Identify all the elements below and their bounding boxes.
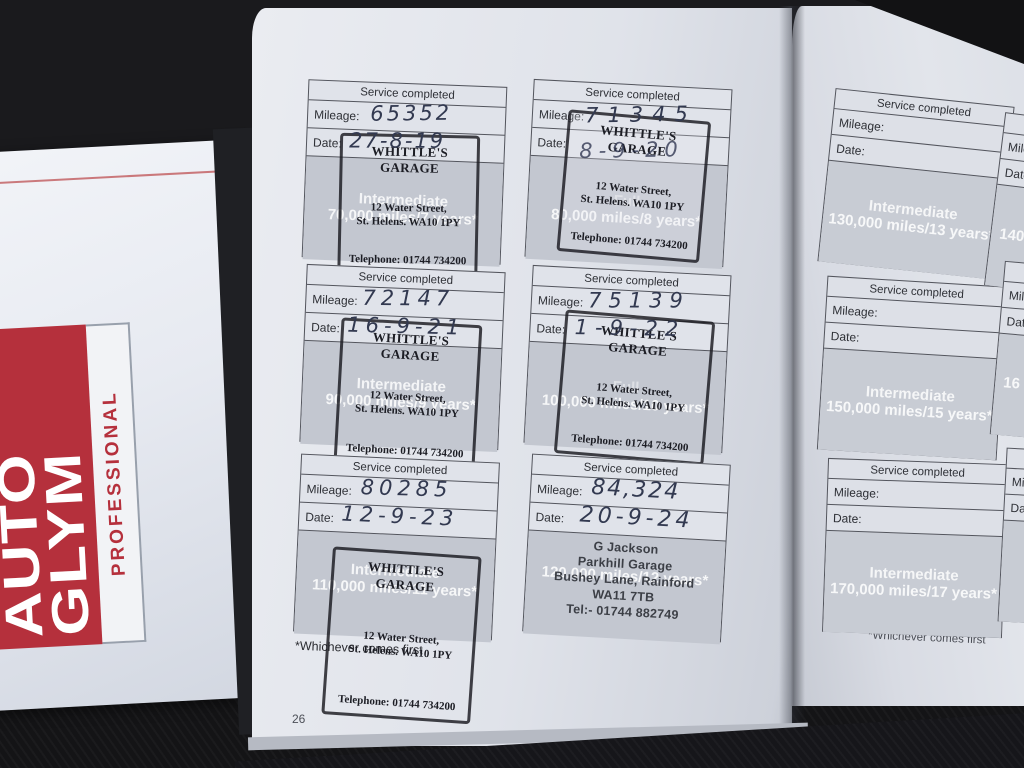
mileage-value: 75139 — [588, 289, 690, 313]
mileage-label: Mileage: — [532, 292, 584, 309]
service-record-box-blank-2: Service completed Mileage: Date: Interme… — [817, 276, 1007, 461]
service-book-photo: AUTO GLYM TM PROFESSIONAL visit us at Se… — [0, 0, 1024, 768]
trademark-symbol: TM — [0, 355, 1, 370]
autoglym-logo-red-block: AUTO GLYM TM — [0, 325, 102, 650]
stamp-address-line2: St. Helens. WA10 1PY — [344, 214, 472, 231]
date-label: Date: — [1000, 313, 1024, 330]
book-spine-shadow — [779, 6, 805, 742]
whittles-garage-stamp: WHITTLE'S GARAGE 12 Water Street, St. He… — [333, 317, 482, 471]
date-label: Date: — [827, 510, 862, 525]
stamp-address: 12 Water Street, St. Helens. WA10 1PY — [331, 626, 470, 664]
date-label: Date: — [307, 135, 342, 150]
date-value: 20-9-24 — [579, 502, 694, 533]
service-record-box-blank-3: Service completed Mileage: Date: Interme… — [822, 458, 1008, 638]
date-label: Date: — [305, 319, 340, 334]
mileage-label: Mileage: — [1006, 474, 1024, 491]
mileage-label: Mileage: — [306, 291, 358, 307]
whittles-garage-stamp: WHITTLE'S GARAGE 12 Water Street, St. He… — [337, 133, 480, 278]
date-label: Date: — [824, 328, 859, 344]
leaflet-red-line — [0, 169, 251, 186]
service-record-box-1: Service completed Mileage: 65352 Date: 2… — [302, 79, 508, 265]
service-completed-label: Service completed — [353, 460, 448, 476]
mileage-label: Mileage: — [308, 107, 360, 123]
page-number: 26 — [292, 712, 305, 726]
service-completed-label: Service completed — [870, 464, 965, 479]
date-value: 1-9-22 — [574, 315, 685, 341]
mileage-label: Mileage: — [826, 302, 878, 319]
stamp-address: 12 Water Street, St. Helens. WA10 1PY — [564, 377, 704, 417]
service-record-box-blank-1: Service completed Mileage: Date: Interme… — [817, 88, 1014, 280]
stamp-garage-name: WHITTLE'S GARAGE — [336, 557, 475, 598]
stamp-area — [999, 521, 1024, 631]
jackson-garage-stamp: G Jackson Parkhill Garage Bushey Lane, R… — [530, 535, 718, 625]
date-label: Date: — [529, 509, 564, 525]
date-label: Date: — [830, 140, 866, 158]
stamp-area — [818, 161, 1006, 280]
mileage-label: Mileage: — [1002, 287, 1024, 305]
stamp-address: 12 Water Street, St. Helens. WA10 1PY — [344, 200, 473, 231]
date-label: Date: — [299, 509, 334, 525]
service-record-box-5: Service completed Mileage: 80285 Date: 1… — [293, 454, 500, 641]
stamp-phone: Telephone: 01744 734200 — [328, 692, 466, 714]
date-label: Date: — [530, 320, 565, 336]
mileage-value: 71345 — [585, 102, 697, 128]
mileage-value: 84,324 — [591, 475, 681, 505]
autoglym-logo: AUTO GLYM TM PROFESSIONAL — [0, 322, 148, 649]
date-label: Date: — [998, 164, 1024, 182]
stamp-address: 12 Water Street, St. Helens. WA10 1PY — [566, 176, 699, 216]
service-record-box-2: Service completed Mileage: 71345 Date: 8… — [524, 79, 732, 267]
whittles-garage-stamp: WHITTLE'S GARAGE 12 Water Street, St. He… — [321, 546, 481, 724]
service-completed-label: Service completed — [869, 283, 964, 301]
service-completed-label: Service completed — [360, 86, 455, 102]
brand-line-glym: GLYM — [39, 449, 95, 636]
date-label: Date: — [1004, 500, 1024, 516]
service-record-box-4: Service completed Mileage: 75139 Date: 1… — [523, 265, 731, 453]
mileage-value: 72147 — [362, 286, 454, 311]
stamp-address: 12 Water Street, St. Helens. WA10 1PY — [342, 386, 472, 422]
stamp-area — [818, 349, 1002, 461]
mileage-label: Mileage: — [531, 481, 583, 498]
mileage-value: 65352 — [370, 101, 452, 126]
stamp-phone: Telephone: 01744 734200 — [563, 229, 695, 252]
date-value: 12-9-23 — [341, 501, 459, 530]
service-record-box-6: Service completed Mileage: 84,324 Date: … — [522, 454, 731, 643]
date-value: 16-9-21 — [347, 313, 465, 340]
service-completed-label: Service completed — [584, 272, 679, 289]
mileage-label: Mileage: — [828, 484, 880, 500]
whittles-garage-stamp: WHITTLE'S GARAGE 12 Water Street, St. He… — [556, 109, 711, 263]
service-completed-label: Service completed — [358, 271, 453, 287]
service-record-box-3: Service completed Mileage: 72147 Date: 1… — [299, 264, 505, 450]
stamp-phone: Telephone: 01744 734200 — [561, 431, 700, 455]
mileage-label: Mileage: — [832, 115, 885, 134]
mileage-label: Mileage: — [1001, 139, 1024, 159]
date-value: 8-9-20 — [579, 137, 684, 163]
autoglym-brand-text: AUTO GLYM — [0, 449, 96, 639]
mileage-value: 80285 — [360, 475, 452, 502]
mileage-label: Mileage: — [300, 481, 352, 497]
service-completed-label: Service completed — [585, 86, 680, 103]
stamp-area — [823, 531, 1004, 638]
date-value: 27-8-19 — [349, 129, 445, 153]
date-label: Date: — [531, 134, 566, 150]
